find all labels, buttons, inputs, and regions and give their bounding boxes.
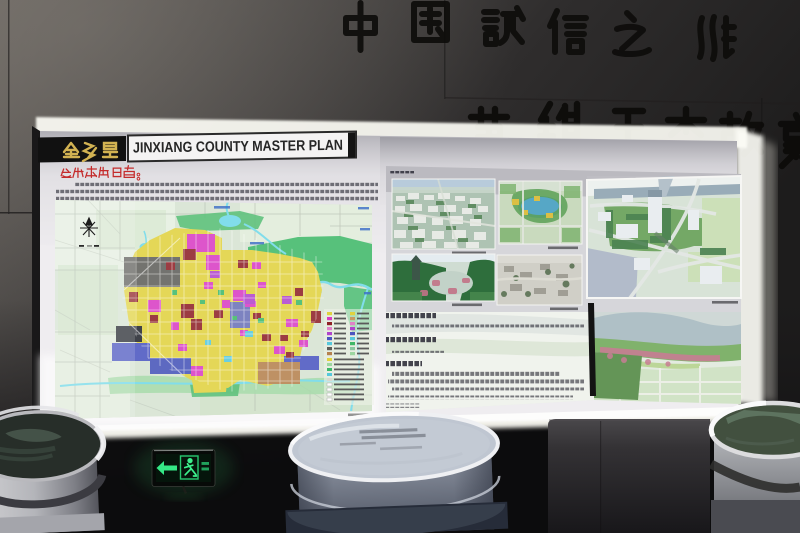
svg-text:JINXIANG COUNTY MASTER PLAN: JINXIANG COUNTY MASTER PLAN (133, 138, 343, 157)
